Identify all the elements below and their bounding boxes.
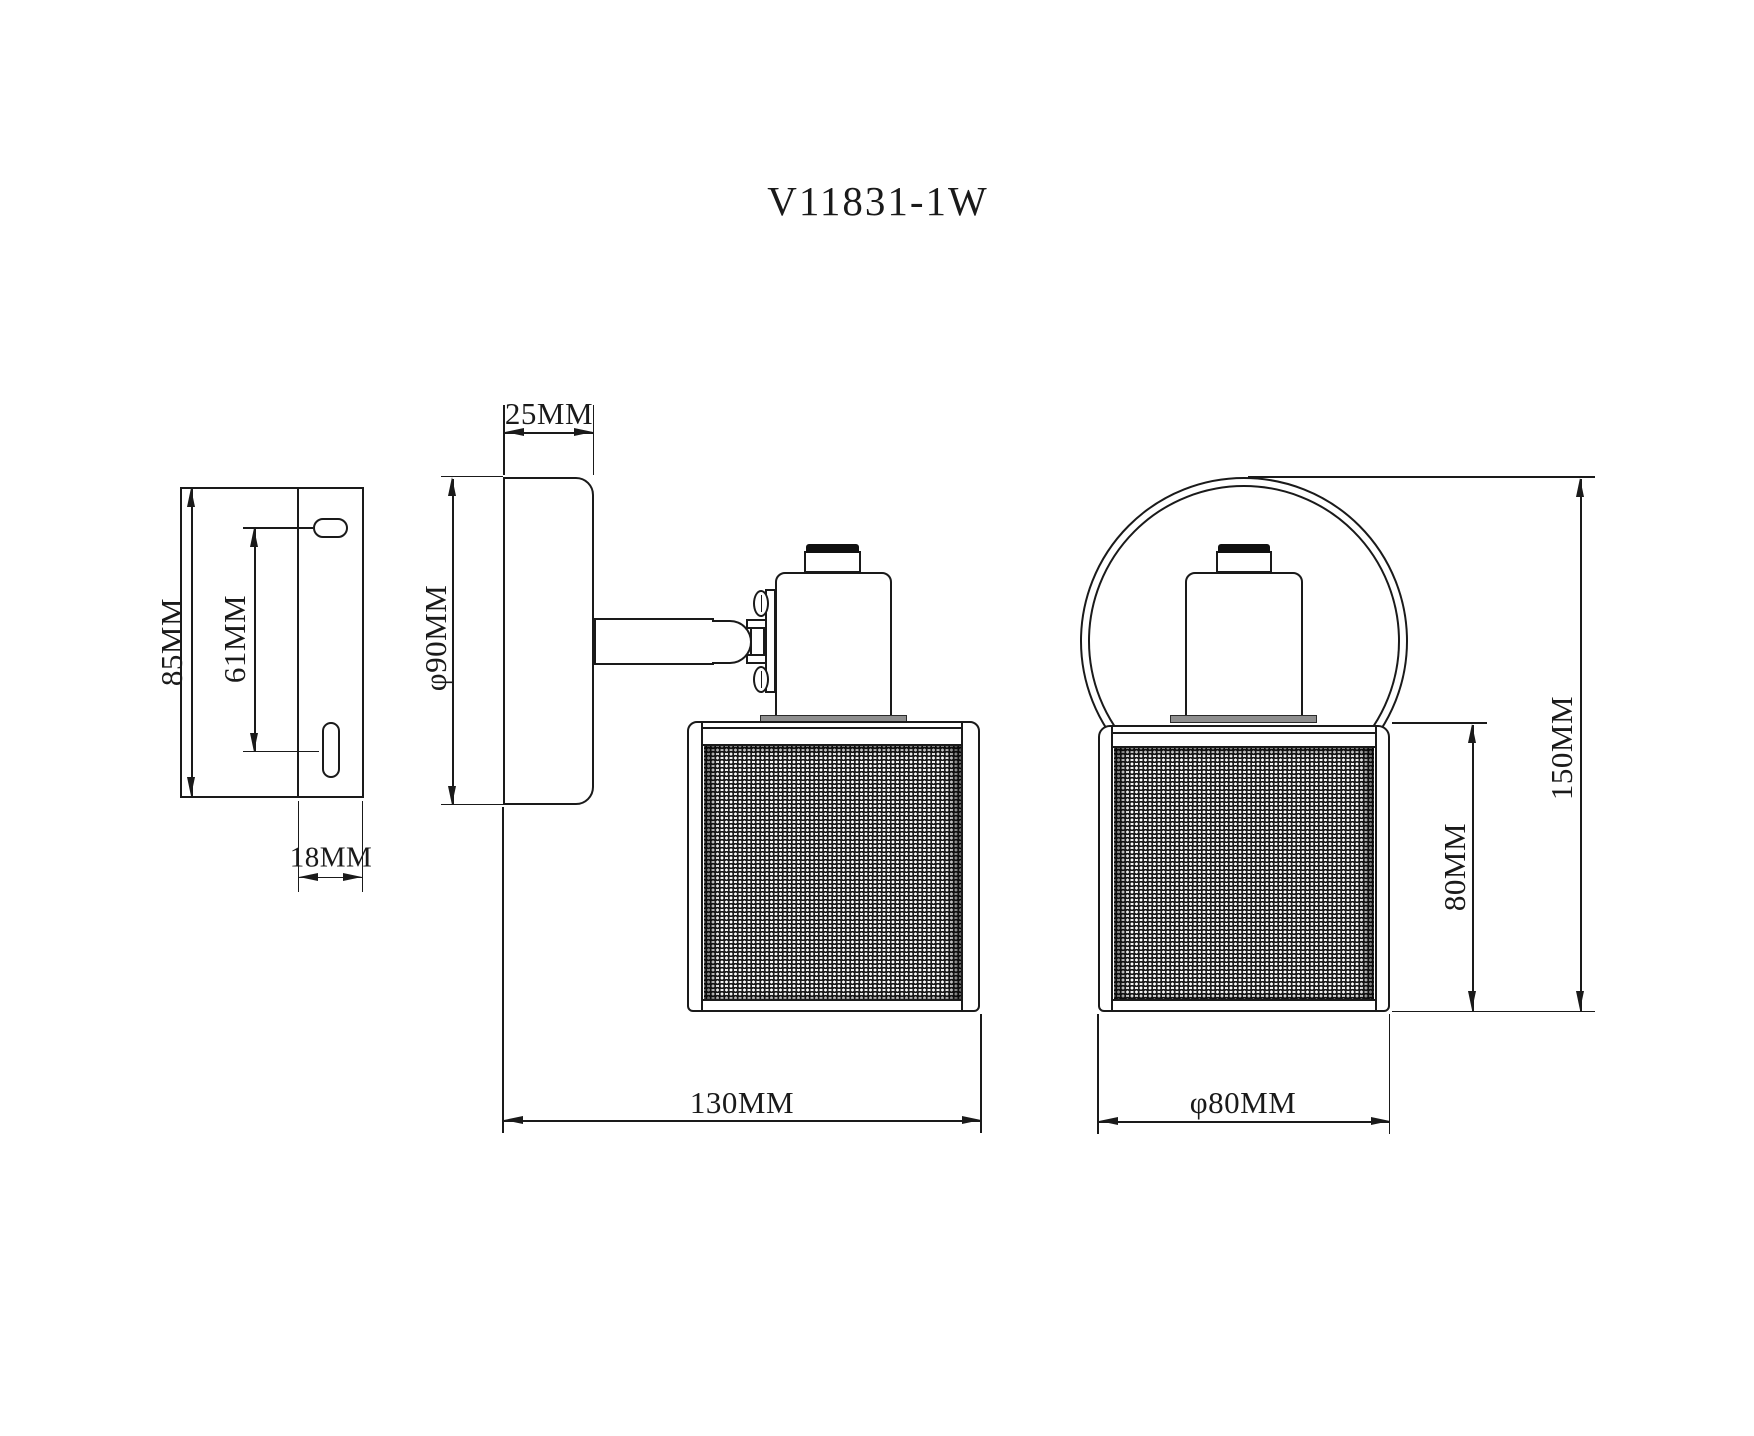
dim-150mm-ext-top [1248,476,1595,478]
dim-d80mm-ext-right [1389,1014,1391,1134]
shade-sidewall-right [961,723,963,1010]
lamp-head-side [775,572,892,717]
joint-clevis-center [750,627,765,657]
dim-d80mm-arrow-right [1371,1117,1390,1125]
drawing-title: V11831-1W [767,177,988,225]
socket-cap-band-front [1218,544,1270,553]
shade-rim-top-line [703,727,961,729]
dim-d80mm-label: φ80MM [1190,1085,1297,1121]
dim-90mm-arrow-down [448,786,456,805]
dim-bottom-ext [1392,1011,1595,1013]
shade-front-sidewall-left [1111,727,1113,1012]
dim-90mm-arrow-up [448,477,456,496]
dim-d80mm-ext-left [1097,1014,1099,1134]
lamp-head-front [1185,572,1303,717]
dim-150mm-line [1580,479,1582,1011]
dim-85mm-arrow-down [187,777,195,796]
dim-61mm-label: 61MM [217,595,253,683]
dim-130mm-arrow-right [962,1116,981,1124]
arm [594,618,714,665]
shade-sidewall-left [701,723,703,1010]
joint-screw-bottom-slot [761,671,763,688]
dim-150mm-arrow-down [1576,991,1584,1010]
socket-cap-band-side [806,544,859,553]
canopy-side [503,477,594,805]
dim-90mm-label: φ90MM [418,585,454,692]
dim-80mm-label: 80MM [1437,823,1473,911]
socket-cap-side [804,551,861,573]
dim-85mm-line [191,489,193,796]
shade-inner-bottom-line [703,999,961,1001]
dim-150mm-label: 150MM [1544,696,1580,800]
dim-85mm-arrow-up [187,488,195,507]
dim-25mm-label: 25MM [505,396,593,432]
shade-mesh-side [704,746,961,999]
dim-61mm-arrow-up [250,528,258,547]
dim-80mm-arrow-down [1468,991,1476,1010]
dim-85mm-label: 85MM [154,598,190,686]
dim-61mm-arrow-down [250,733,258,752]
socket-cap-front [1216,551,1272,573]
bracket-slot-bottom [322,722,340,778]
dim-d80mm-line [1099,1121,1389,1123]
dim-150mm-arrow-up [1576,478,1584,497]
shade-front-rim-top-line [1113,732,1375,734]
shade-front-sidewall-right [1375,727,1377,1012]
technical-drawing-canvas: V11831-1W 85MM 61MM 18MM [0,0,1754,1436]
shade-flange-front [1170,715,1317,723]
dim-130mm-label: 130MM [690,1085,794,1121]
joint-screw-top-slot [761,595,763,612]
shade-mesh-front [1114,748,1374,999]
dim-130mm-ext-left [502,807,504,1133]
dim-18mm-label: 18MM [290,842,373,875]
shade-front-inner-bottom-line [1113,999,1375,1001]
dim-130mm-arrow-left [504,1116,523,1124]
dim-130mm-ext-right [980,1014,982,1133]
bracket-slot-top [313,518,348,538]
dim-80mm-arrow-up [1468,724,1476,743]
dim-d80mm-arrow-left [1099,1117,1118,1125]
dim-61mm-line [254,529,256,751]
